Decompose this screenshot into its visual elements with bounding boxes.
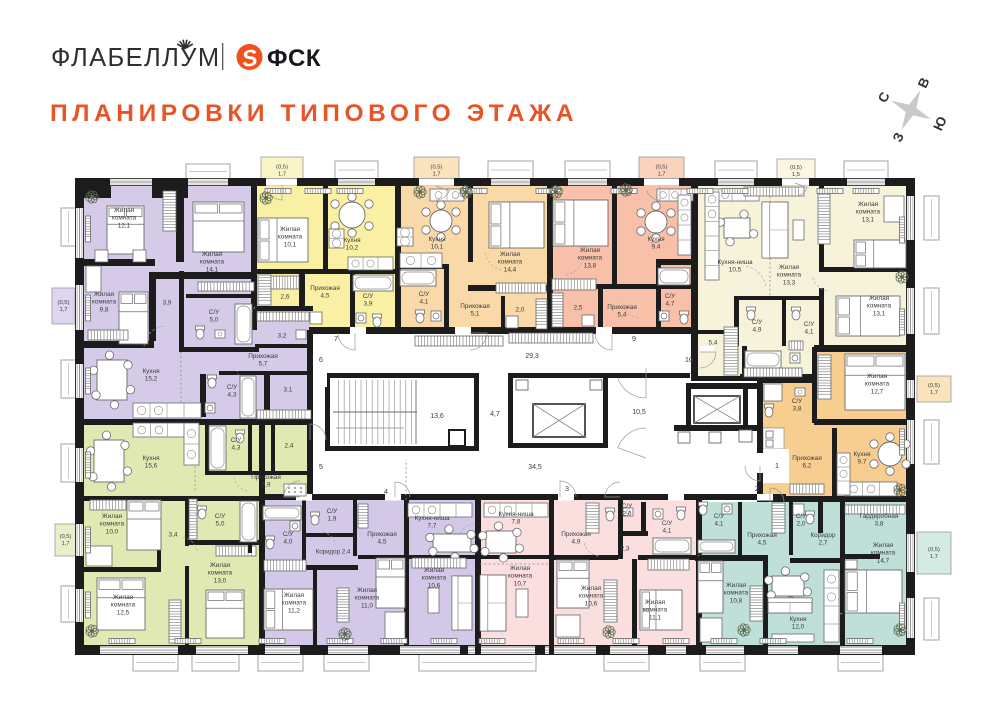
svg-text:3,8: 3,8 — [793, 405, 802, 412]
svg-text:1,7: 1,7 — [930, 390, 938, 396]
svg-text:11,2: 11,2 — [288, 607, 300, 614]
svg-text:Коридор: Коридор — [810, 532, 836, 539]
svg-text:Жилая: Жилая — [424, 567, 445, 574]
svg-text:1: 1 — [775, 461, 779, 470]
svg-text:Жилая: Жилая — [202, 251, 223, 258]
svg-text:Прихожая: Прихожая — [561, 531, 591, 538]
svg-text:Кухня: Кухня — [142, 455, 160, 462]
svg-text:4,9: 4,9 — [753, 326, 762, 333]
svg-text:15,6: 15,6 — [145, 462, 158, 469]
svg-text:Жилая: Жилая — [284, 592, 305, 599]
svg-text:комната: комната — [278, 234, 303, 241]
svg-text:4: 4 — [384, 487, 388, 496]
svg-text:С/У: С/У — [283, 531, 294, 538]
svg-text:2,0: 2,0 — [623, 510, 632, 517]
svg-text:3,4: 3,4 — [169, 532, 178, 539]
svg-text:1,7: 1,7 — [432, 172, 440, 178]
svg-text:комната: комната — [422, 575, 447, 582]
svg-text:1,7: 1,7 — [930, 554, 938, 560]
svg-text:2,0: 2,0 — [797, 520, 806, 527]
svg-text:комната: комната — [578, 255, 603, 262]
svg-text:2: 2 — [755, 484, 759, 493]
svg-text:1,7: 1,7 — [278, 172, 286, 178]
svg-text:29,3: 29,3 — [525, 353, 539, 360]
svg-text:С/У: С/У — [796, 513, 807, 520]
svg-text:10,1: 10,1 — [431, 243, 444, 250]
svg-text:комната: комната — [643, 607, 668, 614]
svg-text:комната: комната — [200, 259, 225, 266]
svg-text:9,4: 9,4 — [652, 243, 661, 250]
svg-text:комната: комната — [871, 550, 896, 557]
svg-text:9,8: 9,8 — [100, 306, 109, 313]
svg-text:4,9: 4,9 — [572, 538, 581, 545]
svg-text:Жилая: Жилая — [510, 565, 531, 572]
svg-text:5,0: 5,0 — [216, 520, 225, 527]
svg-text:комната: комната — [498, 259, 523, 266]
svg-text:Жилая: Жилая — [500, 251, 521, 258]
svg-text:12,7: 12,7 — [871, 388, 884, 395]
svg-text:11,0: 11,0 — [361, 602, 373, 609]
svg-text:2,5: 2,5 — [574, 305, 583, 312]
svg-text:3,9: 3,9 — [163, 300, 172, 307]
svg-text:(0,5): (0,5) — [431, 165, 443, 171]
svg-text:4,0: 4,0 — [284, 538, 293, 545]
svg-text:13,1: 13,1 — [873, 310, 886, 317]
svg-text:2,3: 2,3 — [621, 546, 630, 553]
svg-text:Кухня-ниша: Кухня-ниша — [498, 511, 533, 518]
svg-text:С/У: С/У — [231, 437, 242, 444]
svg-text:Жилая: Жилая — [580, 247, 601, 254]
svg-text:С/У: С/У — [209, 309, 220, 316]
svg-text:комната: комната — [865, 381, 890, 388]
svg-text:комната: комната — [867, 303, 892, 310]
svg-text:комната: комната — [777, 272, 802, 279]
svg-text:10: 10 — [685, 355, 693, 364]
svg-text:Кухня: Кухня — [343, 237, 361, 244]
svg-text:2,6: 2,6 — [281, 294, 290, 301]
svg-text:34,5: 34,5 — [528, 464, 542, 471]
svg-text:3,8: 3,8 — [875, 520, 884, 527]
svg-text:ФЛАБЕЛЛУМ: ФЛАБЕЛЛУМ — [51, 44, 221, 72]
svg-text:12,5: 12,5 — [117, 609, 130, 616]
svg-text:1,7: 1,7 — [657, 172, 665, 178]
svg-text:комната: комната — [112, 215, 137, 222]
svg-text:(0,5): (0,5) — [928, 383, 940, 389]
svg-text:3,2: 3,2 — [278, 333, 287, 340]
svg-text:(0,5): (0,5) — [60, 534, 72, 540]
svg-text:7: 7 — [334, 334, 338, 343]
svg-text:(0,5): (0,5) — [656, 165, 668, 171]
svg-text:Кухня: Кухня — [853, 451, 871, 458]
svg-text:4,3: 4,3 — [228, 391, 237, 398]
svg-text:С/У: С/У — [215, 513, 226, 520]
svg-text:4,1: 4,1 — [663, 527, 672, 534]
svg-text:Прихожая: Прихожая — [607, 304, 637, 311]
svg-text:5,1: 5,1 — [471, 310, 480, 317]
svg-text:Прихожая: Прихожая — [747, 532, 777, 539]
svg-text:Прихожая: Прихожая — [792, 455, 822, 462]
svg-text:4,7: 4,7 — [490, 411, 500, 418]
svg-text:10,0: 10,0 — [106, 528, 119, 535]
svg-text:(0,5): (0,5) — [928, 547, 940, 553]
svg-text:14,7: 14,7 — [877, 557, 890, 564]
svg-text:3,9: 3,9 — [364, 300, 373, 307]
svg-text:1,7: 1,7 — [61, 541, 69, 547]
svg-text:Жилая: Жилая — [645, 599, 666, 606]
svg-text:Жилая: Жилая — [869, 295, 890, 302]
svg-text:Кухня: Кухня — [428, 236, 446, 243]
svg-text:С/У: С/У — [665, 293, 676, 300]
svg-text:7,8: 7,8 — [512, 518, 521, 525]
svg-text:Прихожая: Прихожая — [367, 531, 397, 538]
svg-text:комната: комната — [208, 570, 233, 577]
svg-text:Жилая: Жилая — [102, 513, 123, 520]
svg-text:Прихожая: Прихожая — [310, 285, 340, 292]
svg-text:12,1: 12,1 — [118, 222, 131, 229]
svg-text:С/У: С/У — [752, 319, 763, 326]
svg-text:Жилая: Жилая — [867, 373, 888, 380]
svg-text:11,1: 11,1 — [649, 614, 661, 621]
svg-text:(0,5): (0,5) — [58, 300, 70, 306]
svg-text:Жилая: Жилая — [94, 291, 115, 298]
svg-text:12,0: 12,0 — [792, 623, 805, 630]
svg-text:Прихожая: Прихожая — [251, 474, 281, 481]
svg-text:15,2: 15,2 — [145, 375, 158, 382]
svg-text:10,5: 10,5 — [729, 266, 742, 273]
svg-text:комната: комната — [282, 600, 307, 607]
svg-text:комната: комната — [355, 595, 380, 602]
svg-text:С/У: С/У — [622, 503, 633, 510]
svg-text:Жилая: Жилая — [873, 542, 894, 549]
svg-text:13,8: 13,8 — [584, 262, 597, 269]
svg-text:Жилая: Жилая — [280, 226, 301, 233]
svg-text:Кухня: Кухня — [142, 368, 160, 375]
svg-text:6,9: 6,9 — [262, 481, 271, 488]
svg-text:14,4: 14,4 — [504, 266, 517, 273]
svg-text:комната: комната — [92, 299, 117, 306]
svg-text:10,1: 10,1 — [284, 241, 297, 248]
svg-text:14,1: 14,1 — [206, 266, 219, 273]
svg-text:С/У: С/У — [714, 513, 725, 520]
svg-text:ПЛАНИРОВКИ ТИПОВОГО ЭТАЖА: ПЛАНИРОВКИ ТИПОВОГО ЭТАЖА — [50, 100, 578, 127]
svg-text:комната: комната — [100, 521, 125, 528]
svg-text:6,2: 6,2 — [803, 462, 812, 469]
svg-text:С/У: С/У — [227, 384, 238, 391]
svg-text:10,2: 10,2 — [346, 244, 359, 251]
svg-text:С/У: С/У — [804, 321, 815, 328]
svg-text:Жилая: Жилая — [858, 201, 879, 208]
svg-text:5: 5 — [319, 462, 323, 471]
svg-text:С/У: С/У — [792, 398, 803, 405]
svg-text:комната: комната — [579, 593, 604, 600]
svg-text:комната: комната — [856, 209, 881, 216]
svg-text:Кухня: Кухня — [647, 236, 665, 243]
svg-text:Жилая: Жилая — [357, 587, 378, 594]
svg-text:Жилая: Жилая — [581, 585, 602, 592]
svg-text:1,5: 1,5 — [792, 172, 800, 178]
svg-text:3,1: 3,1 — [284, 387, 293, 394]
svg-text:4,1: 4,1 — [805, 328, 814, 335]
svg-text:Прихожая: Прихожая — [460, 303, 490, 310]
svg-text:5,4: 5,4 — [709, 340, 718, 347]
svg-text:Кухня-ниша: Кухня-ниша — [414, 515, 449, 522]
svg-text:Жилая: Жилая — [210, 562, 231, 569]
svg-text:13,6: 13,6 — [430, 413, 444, 420]
svg-text:Кухня-ниша: Кухня-ниша — [717, 259, 752, 266]
svg-text:2,0: 2,0 — [516, 307, 525, 314]
svg-text:10,8: 10,8 — [730, 597, 743, 604]
svg-text:С/У: С/У — [327, 508, 338, 515]
svg-text:5,0: 5,0 — [210, 316, 219, 323]
svg-text:6: 6 — [319, 355, 323, 364]
svg-text:5,4: 5,4 — [618, 311, 627, 318]
svg-text:10,5: 10,5 — [632, 409, 646, 416]
svg-text:4,5: 4,5 — [758, 539, 767, 546]
svg-text:Кухня: Кухня — [789, 616, 807, 623]
svg-text:7,7: 7,7 — [428, 522, 437, 529]
svg-text:2,4: 2,4 — [285, 443, 294, 450]
svg-text:4,5: 4,5 — [378, 538, 387, 545]
svg-text:1,9: 1,9 — [328, 515, 337, 522]
svg-text:Коридор 2,4: Коридор 2,4 — [316, 549, 351, 556]
svg-text:Жилая: Жилая — [113, 594, 134, 601]
svg-text:(0,5): (0,5) — [790, 165, 802, 171]
svg-text:С/У: С/У — [363, 293, 374, 300]
svg-text:Прихожая: Прихожая — [248, 353, 278, 360]
svg-text:4,1: 4,1 — [420, 298, 429, 305]
svg-text:3: 3 — [565, 484, 569, 493]
svg-text:1,7: 1,7 — [59, 307, 67, 313]
svg-text:5,7: 5,7 — [259, 360, 268, 367]
svg-text:2,7: 2,7 — [819, 539, 828, 546]
svg-text:4,1: 4,1 — [715, 520, 724, 527]
svg-text:Гардеробная: Гардеробная — [860, 512, 899, 520]
svg-text:комната: комната — [724, 590, 749, 597]
svg-text:13,3: 13,3 — [783, 279, 796, 286]
svg-text:10,7: 10,7 — [514, 580, 527, 587]
svg-text:ФСК: ФСК — [267, 45, 321, 72]
svg-text:Жилая: Жилая — [726, 582, 747, 589]
svg-text:13,1: 13,1 — [862, 216, 875, 223]
svg-text:4,5: 4,5 — [321, 292, 330, 299]
svg-text:С/У: С/У — [419, 291, 430, 298]
svg-text:комната: комната — [111, 602, 136, 609]
svg-text:10,6: 10,6 — [428, 582, 441, 589]
svg-text:(0,5): (0,5) — [276, 165, 288, 171]
svg-text:комната: комната — [508, 573, 533, 580]
svg-text:4,3: 4,3 — [232, 444, 241, 451]
svg-text:9,7: 9,7 — [858, 458, 867, 465]
svg-text:9: 9 — [632, 334, 636, 343]
svg-text:С/У: С/У — [662, 520, 673, 527]
svg-text:Жилая: Жилая — [779, 264, 800, 271]
svg-text:13,0: 13,0 — [214, 577, 227, 584]
svg-text:10,6: 10,6 — [585, 600, 598, 607]
svg-text:4,7: 4,7 — [666, 300, 675, 307]
svg-text:Жилая: Жилая — [114, 207, 135, 214]
